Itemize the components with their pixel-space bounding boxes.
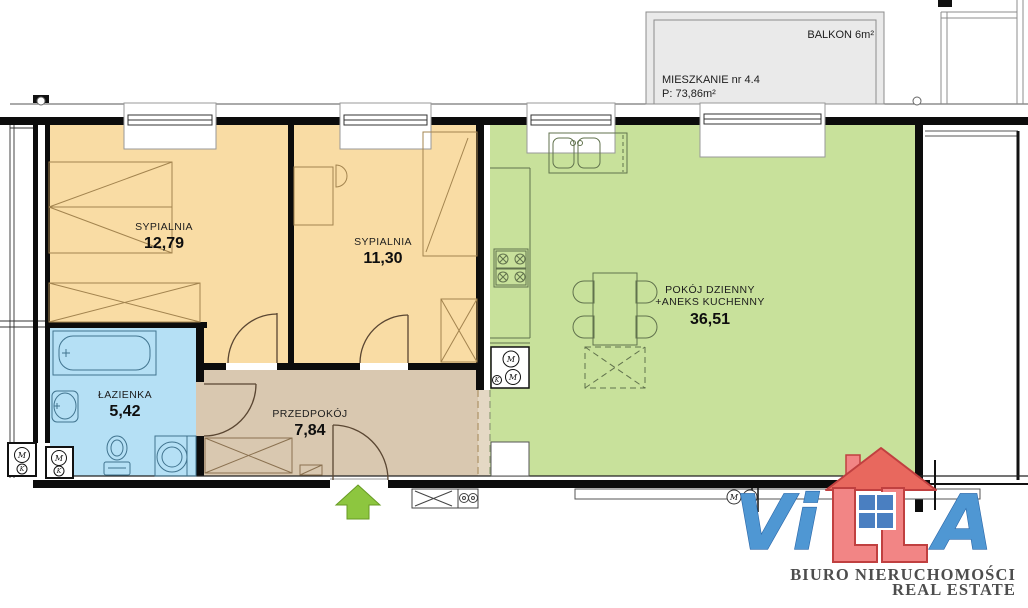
meter-m-label: M	[506, 355, 516, 364]
room-area: 11,30	[363, 250, 402, 267]
meter-m-label: M	[508, 373, 518, 382]
apartment-area: P: 73,86m²	[662, 88, 716, 100]
meter-k-label: K	[494, 377, 500, 384]
room-area: 36,51	[690, 311, 730, 328]
room-name: SYPIALNIA	[354, 236, 412, 248]
logo-letter-a: A	[929, 478, 993, 567]
floorplan-drawing: BALKON 6m² MIESZKANIE nr 4.4 P: 73,86m²	[0, 0, 1028, 608]
room-name: ŁAZIENKA	[98, 389, 152, 401]
room-name: SYPIALNIA	[135, 221, 193, 233]
room-area: 5,42	[109, 403, 140, 420]
meter-box: M K	[8, 443, 36, 476]
room-name-2: +ANEKS KUCHENNY	[655, 296, 765, 308]
balcony-label: BALKON 6m²	[807, 29, 874, 41]
room-name: PRZEDPOKÓJ	[272, 407, 347, 420]
room-area: 7,84	[294, 422, 325, 439]
meter-box: M K	[46, 447, 73, 478]
hall-living-strip	[478, 390, 490, 476]
utility-shaft	[412, 489, 478, 508]
logo-letters-vi: Vi	[735, 478, 819, 567]
window-bedroom-1	[124, 103, 216, 149]
meter-box: M M K	[491, 347, 529, 388]
meter-k-label: K	[19, 466, 25, 473]
meter-m-label: M	[54, 454, 64, 463]
logo-subtitle-line2: REAL ESTATE	[892, 580, 1016, 599]
apartment-title: MIESZKANIE nr 4.4	[662, 74, 760, 86]
column-marker	[37, 97, 45, 105]
meter-k-label: K	[56, 468, 62, 475]
balcony: BALKON 6m² MIESZKANIE nr 4.4 P: 73,86m²	[646, 12, 884, 104]
kitchen-cabinet	[491, 442, 529, 476]
room-hall	[204, 370, 478, 476]
window-bedroom-2	[340, 103, 431, 149]
meter-m-label: M	[17, 451, 27, 460]
floorplan-page: BALKON 6m² MIESZKANIE nr 4.4 P: 73,86m²	[0, 0, 1028, 608]
room-area: 12,79	[144, 235, 184, 252]
room-name: POKÓJ DZIENNY	[665, 283, 755, 296]
entrance-arrow-icon	[336, 485, 380, 519]
balcony-door	[700, 103, 825, 157]
column-marker	[913, 97, 921, 105]
window-kitchen	[527, 103, 615, 153]
room-hall-door-recess	[196, 382, 204, 436]
